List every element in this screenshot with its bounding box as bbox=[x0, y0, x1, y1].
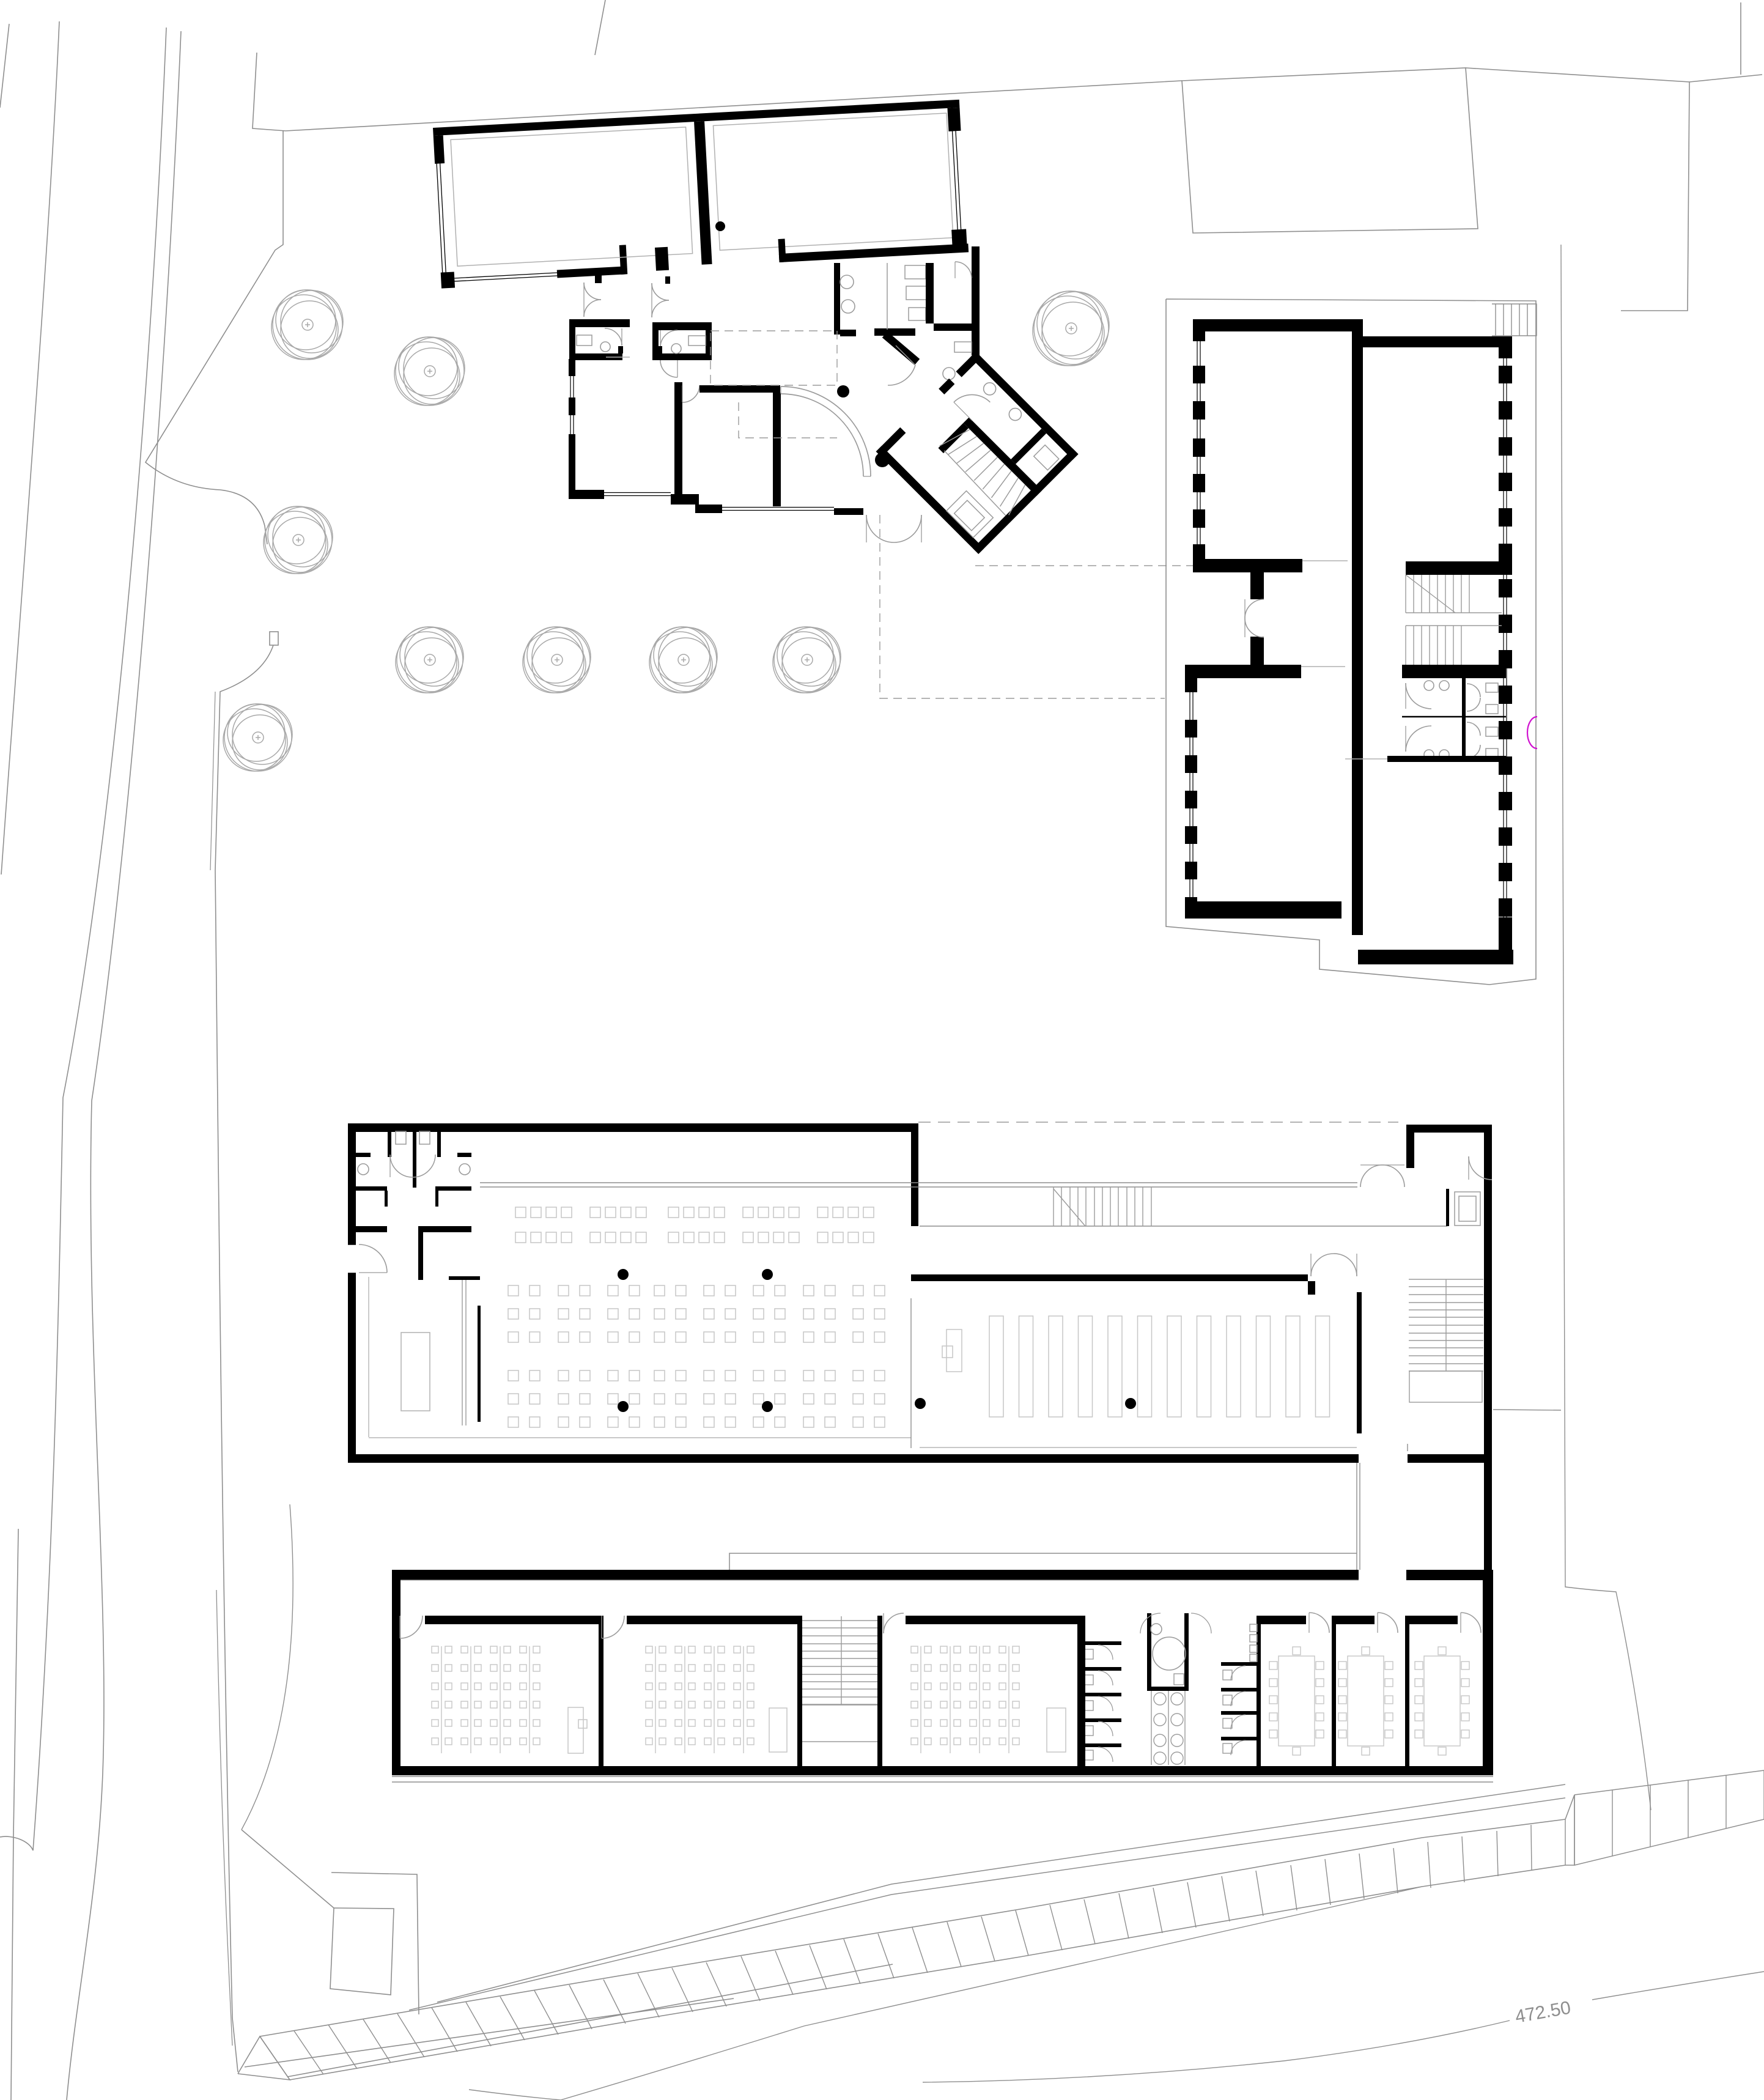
svg-text:472.50: 472.50 bbox=[1513, 1997, 1572, 2027]
